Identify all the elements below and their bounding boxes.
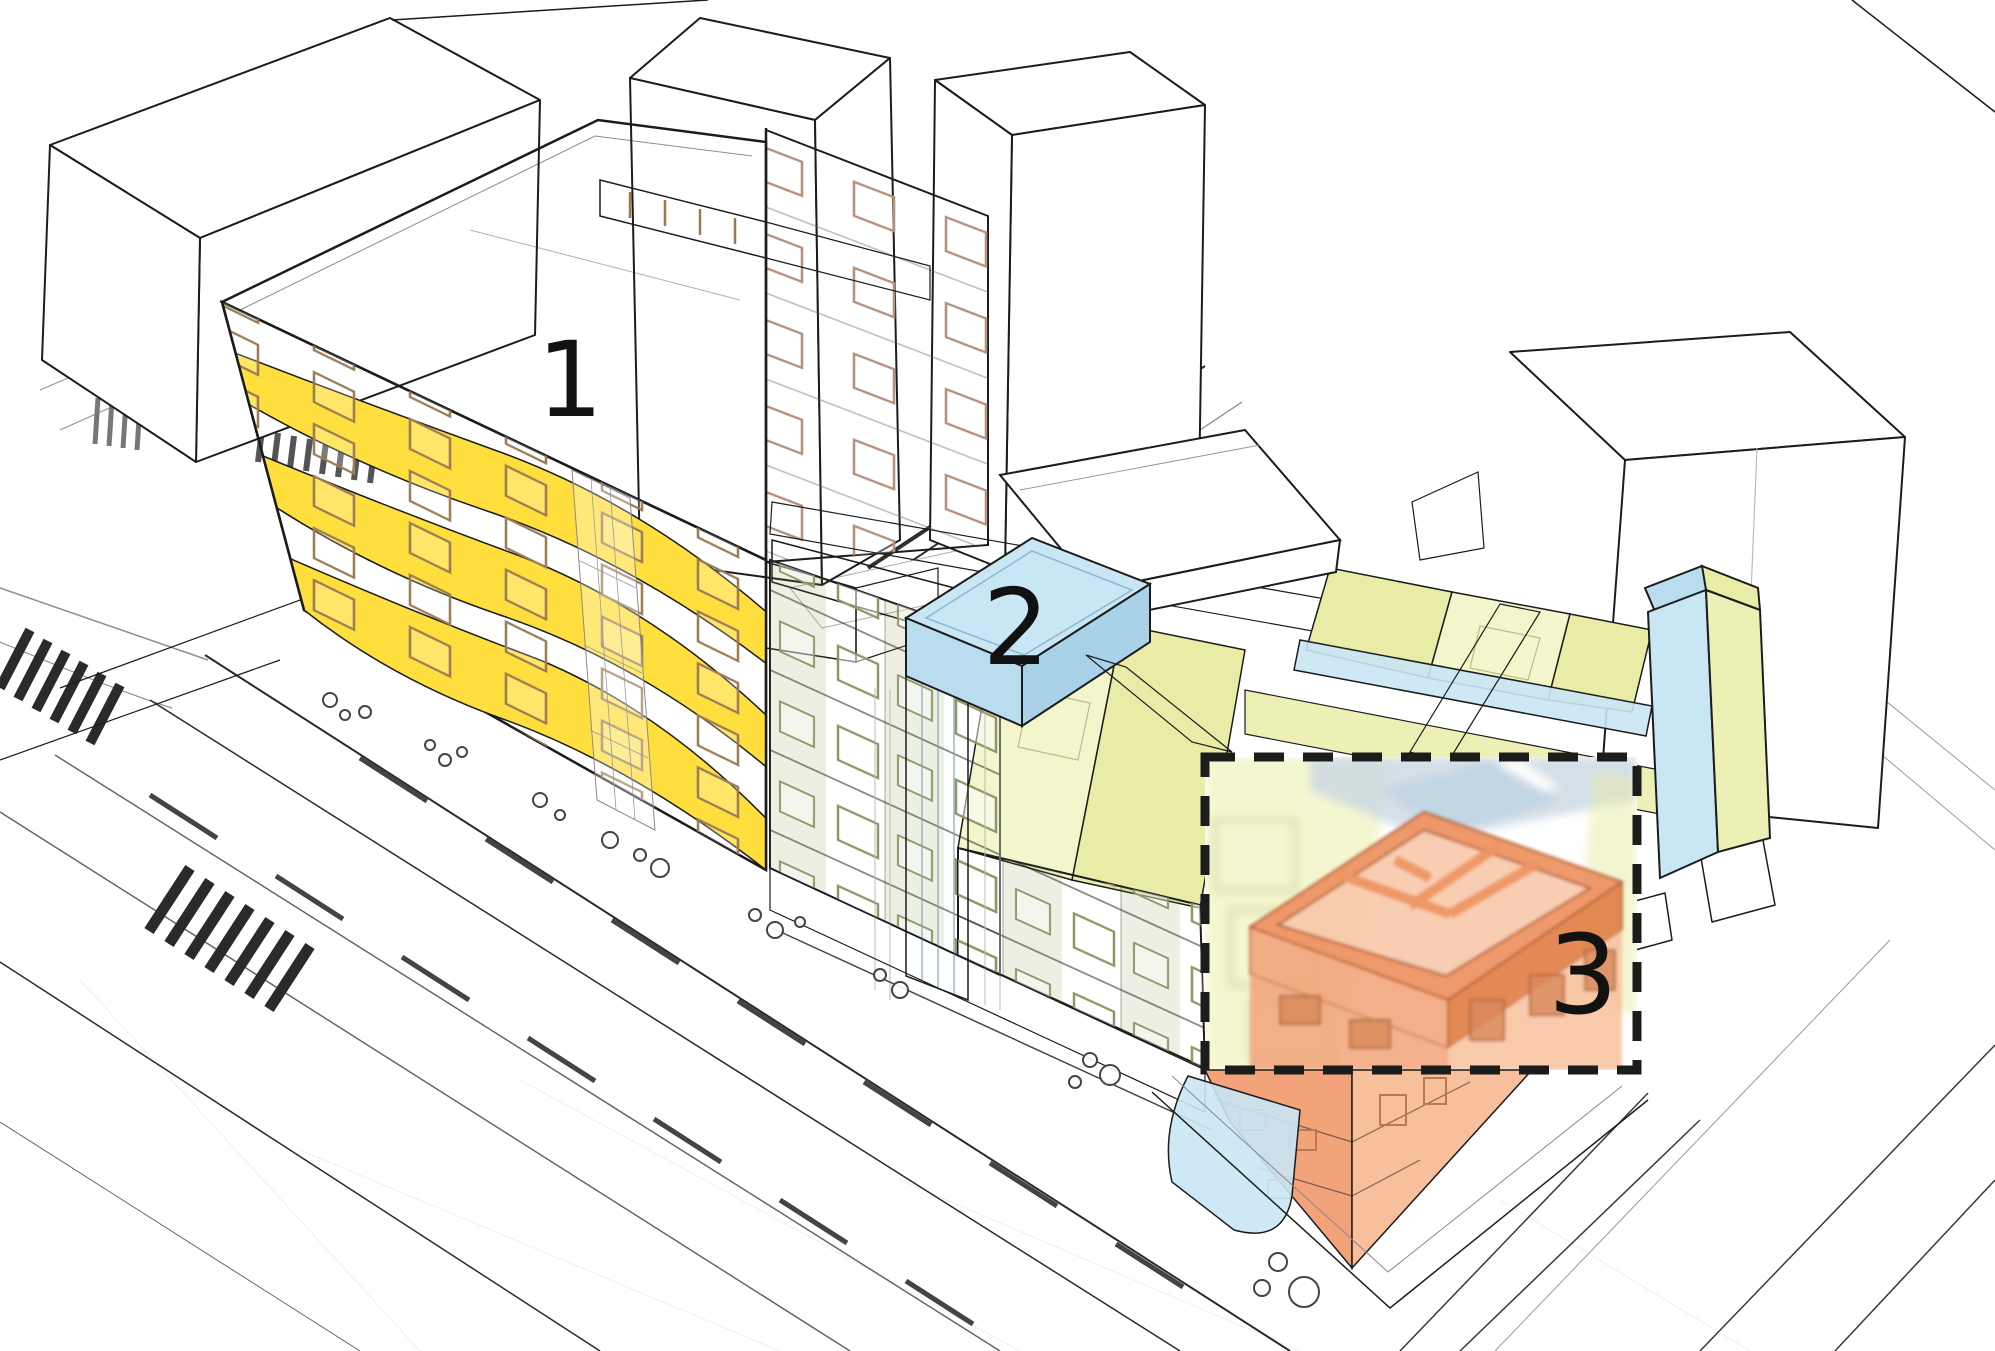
- block-1-label: 1: [537, 319, 603, 441]
- block2-right-end: [1645, 566, 1770, 878]
- architectural-diagram: 1: [0, 0, 1995, 1351]
- block-2-label: 2: [983, 567, 1050, 689]
- site-axonometric-view: 1: [0, 0, 1995, 1351]
- block-3-label: 3: [1548, 911, 1618, 1039]
